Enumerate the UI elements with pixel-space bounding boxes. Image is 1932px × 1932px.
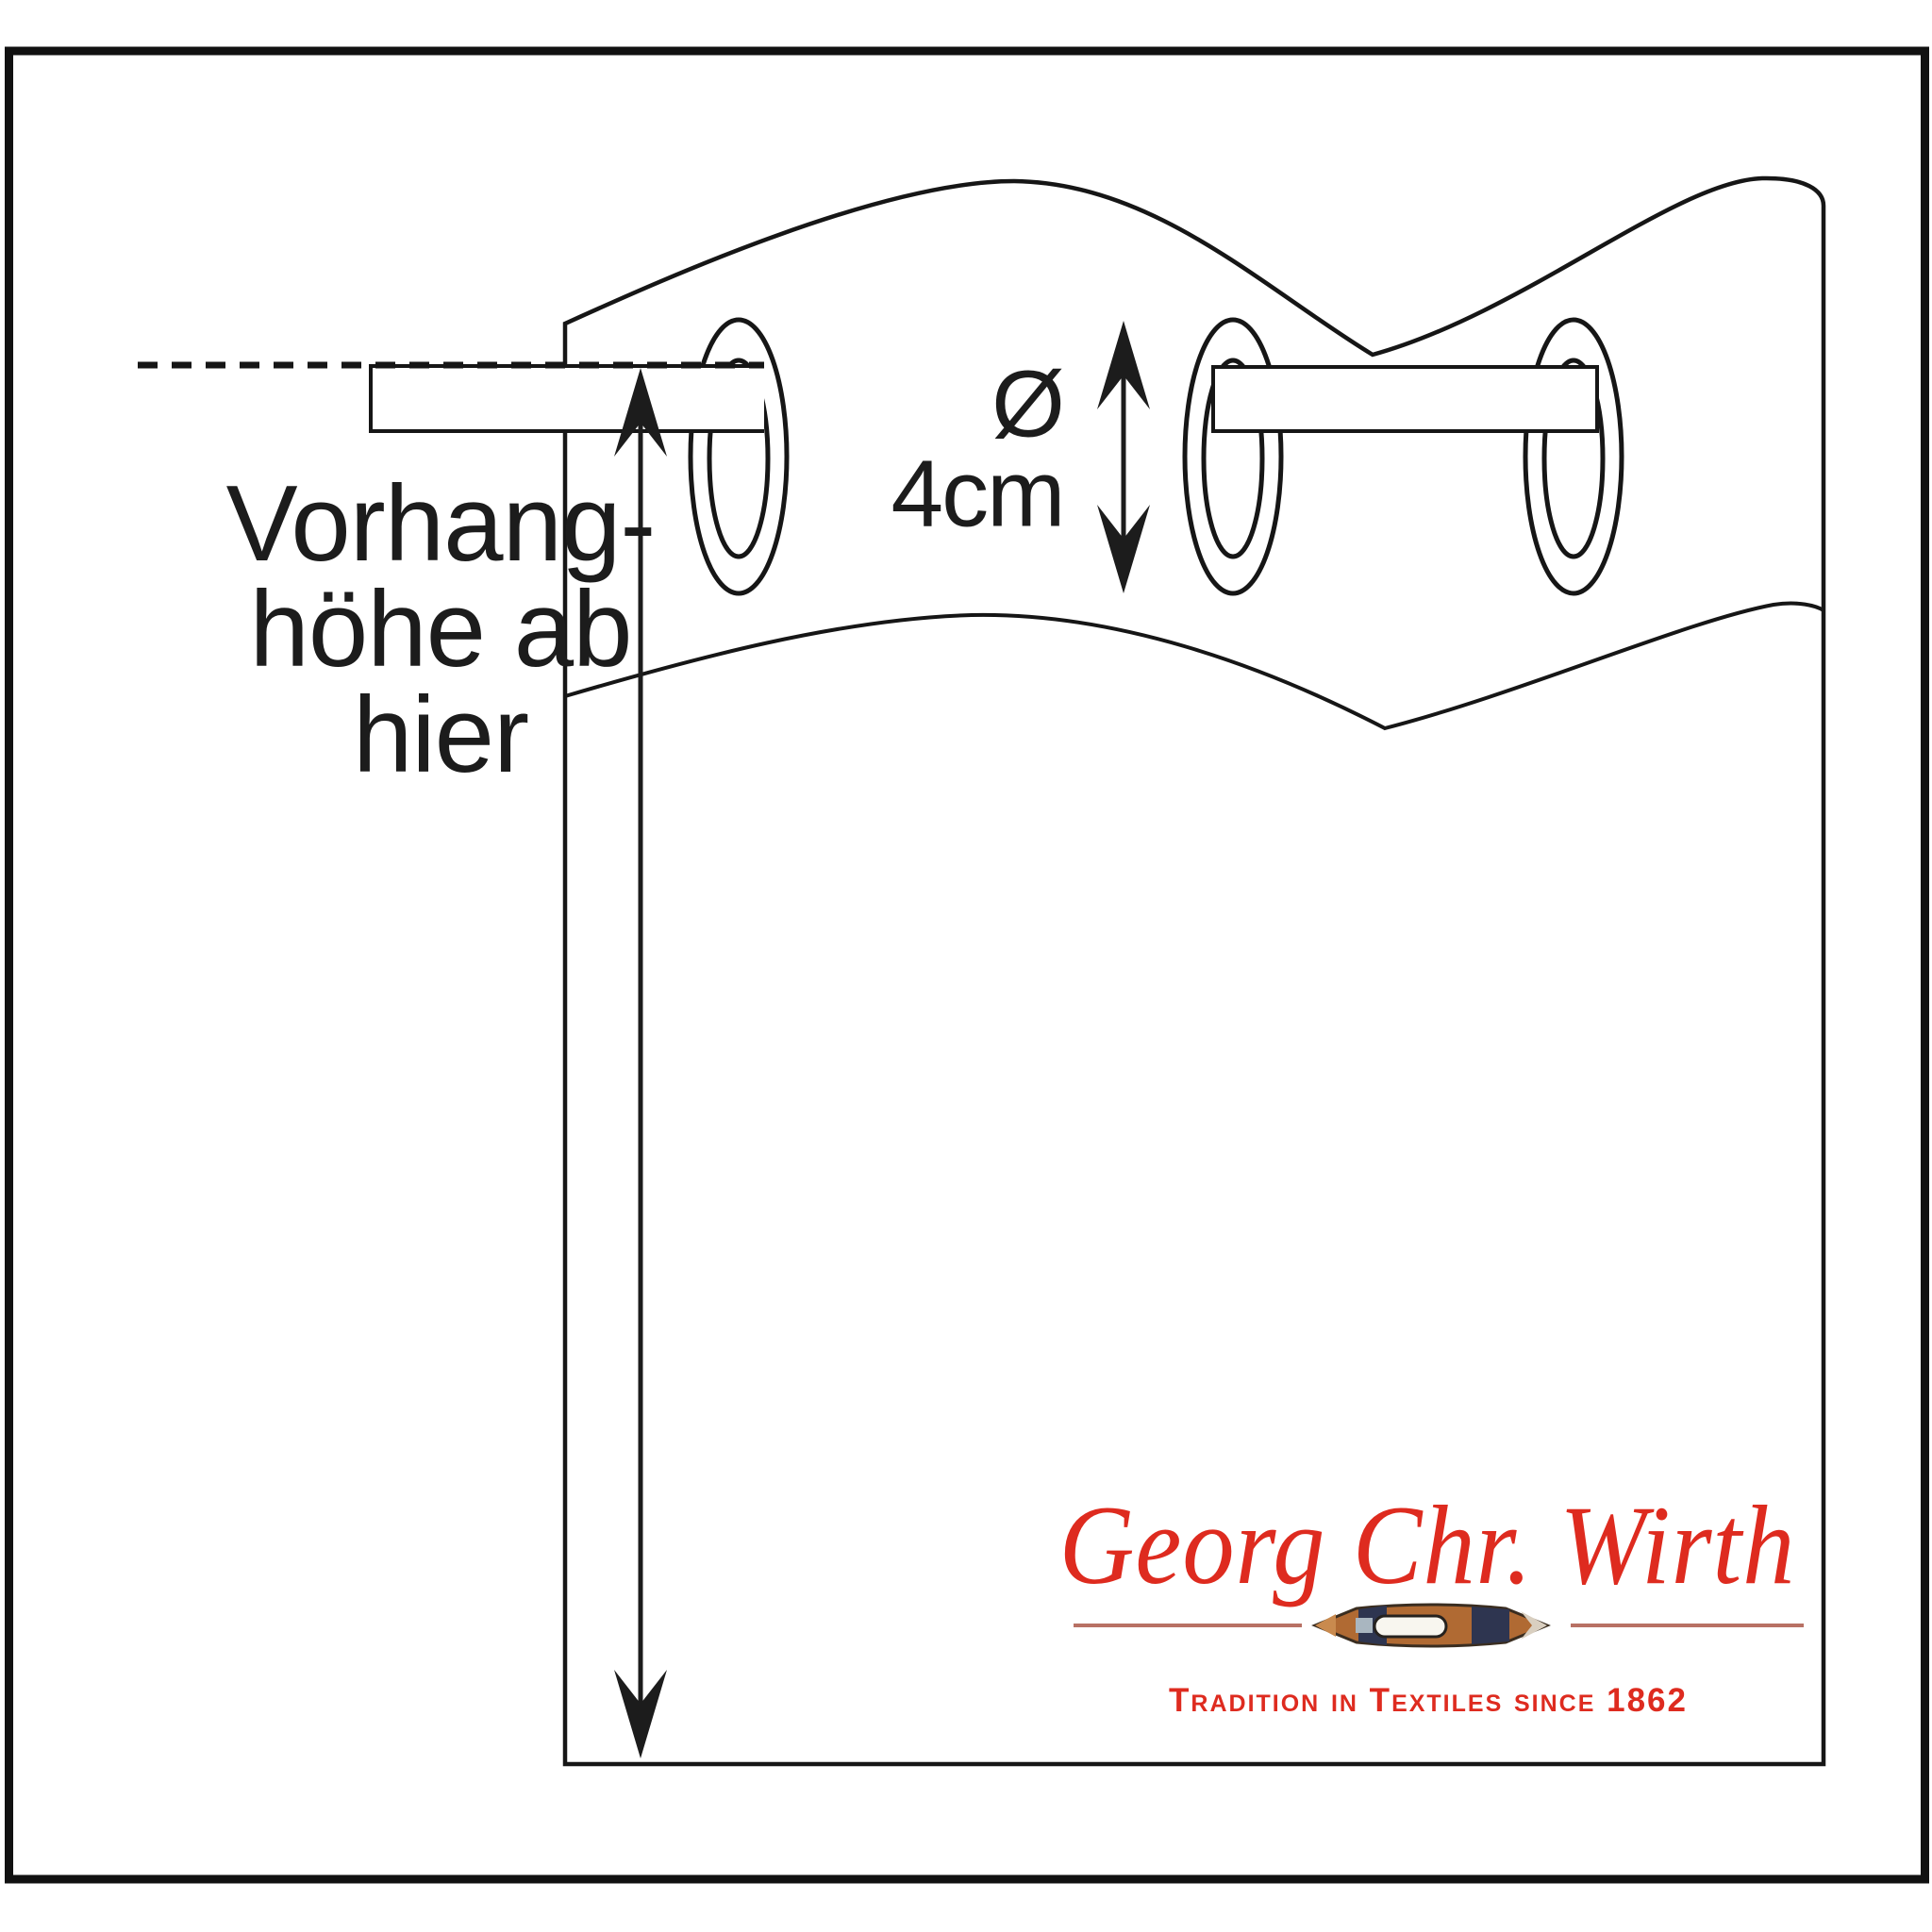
brand-wordmark: Georg Chr. Wirth	[1059, 1480, 1795, 1610]
shuttle-accent	[1356, 1618, 1373, 1633]
curtain-height-label-line1: Vorhang-	[110, 472, 771, 577]
brand-tagline: Tradition in Textiles since 1862	[1169, 1682, 1688, 1720]
curtain-rod-left	[371, 366, 764, 431]
curtain-height-label-line2: höhe ab	[110, 577, 771, 683]
curtain-height-label-line3: hier	[110, 683, 771, 789]
shuttle-navy-band-right	[1472, 1607, 1509, 1644]
eyelet-right	[1525, 320, 1622, 593]
curtain-rod-middle	[1213, 367, 1597, 431]
diagram-line-art	[0, 0, 1932, 1932]
curtain-measurement-diagram: Vorhang- höhe ab hier Ø 4cm Georg Chr. W…	[0, 0, 1932, 1932]
curtain-height-label: Vorhang- höhe ab hier	[110, 472, 771, 789]
eyelet-middle	[1185, 320, 1281, 593]
shuttle-eye	[1374, 1616, 1446, 1637]
eyelet-diameter-value: 4cm	[891, 441, 1064, 549]
weaving-shuttle-icon	[1315, 1605, 1547, 1646]
